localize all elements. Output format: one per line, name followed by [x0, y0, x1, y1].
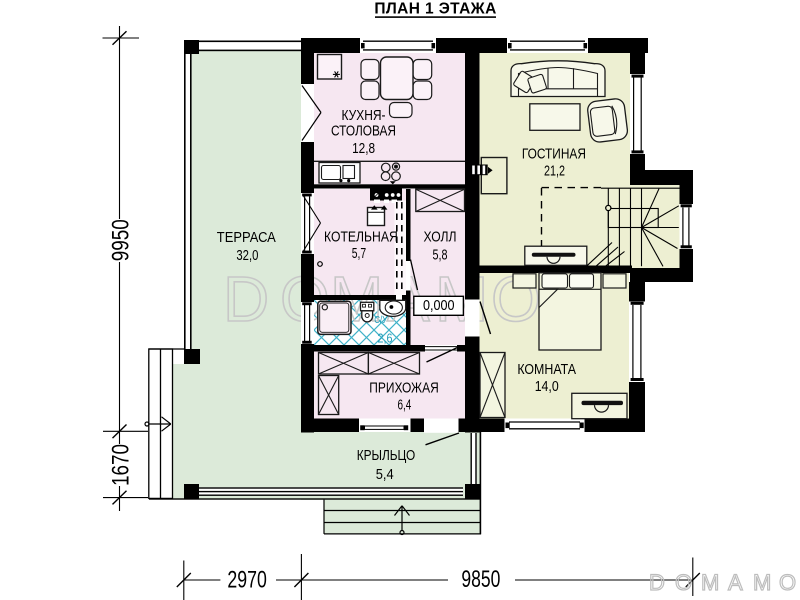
svg-text:A: A [728, 570, 743, 595]
svg-text:D: D [223, 263, 269, 335]
svg-text:14,0: 14,0 [535, 379, 559, 395]
svg-text:ХОЛЛ: ХОЛЛ [424, 230, 457, 246]
svg-text:M: M [753, 570, 771, 595]
svg-text:СТОЛОВАЯ: СТОЛОВАЯ [331, 124, 396, 140]
svg-text:32,0: 32,0 [236, 248, 258, 264]
svg-text:5,4: 5,4 [376, 467, 394, 483]
svg-text:M: M [701, 570, 719, 595]
svg-text:2,6: 2,6 [378, 332, 393, 346]
svg-text:5,7: 5,7 [352, 246, 366, 262]
svg-text:ТЕРРАСА: ТЕРРАСА [217, 230, 276, 246]
svg-text:9950: 9950 [108, 219, 135, 261]
svg-text:КОМНАТА: КОМНАТА [517, 362, 576, 378]
svg-text:1670: 1670 [108, 444, 135, 486]
svg-text:0,000: 0,000 [423, 297, 455, 314]
svg-text:O: O [675, 570, 692, 595]
svg-text:O: O [779, 570, 796, 595]
svg-text:ПРИХОЖАЯ: ПРИХОЖАЯ [369, 381, 438, 397]
svg-text:5,8: 5,8 [433, 247, 448, 263]
svg-text:КУХНЯ-: КУХНЯ- [342, 108, 386, 124]
svg-text:2970: 2970 [227, 567, 266, 594]
svg-text:9850: 9850 [461, 566, 500, 593]
svg-text:ПЛАН 1 ЭТАЖА: ПЛАН 1 ЭТАЖА [374, 0, 496, 17]
svg-text:21,2: 21,2 [544, 164, 565, 180]
svg-text:6,4: 6,4 [398, 397, 412, 413]
svg-text:КРЫЛЬЦО: КРЫЛЬЦО [357, 448, 416, 464]
svg-text:КОТЕЛЬНАЯ: КОТЕЛЬНАЯ [324, 230, 398, 246]
svg-text:D: D [649, 570, 665, 595]
svg-text:ГОСТИНАЯ: ГОСТИНАЯ [522, 146, 586, 162]
svg-text:12,8: 12,8 [352, 141, 375, 157]
svg-text:С/У: С/У [374, 314, 387, 326]
